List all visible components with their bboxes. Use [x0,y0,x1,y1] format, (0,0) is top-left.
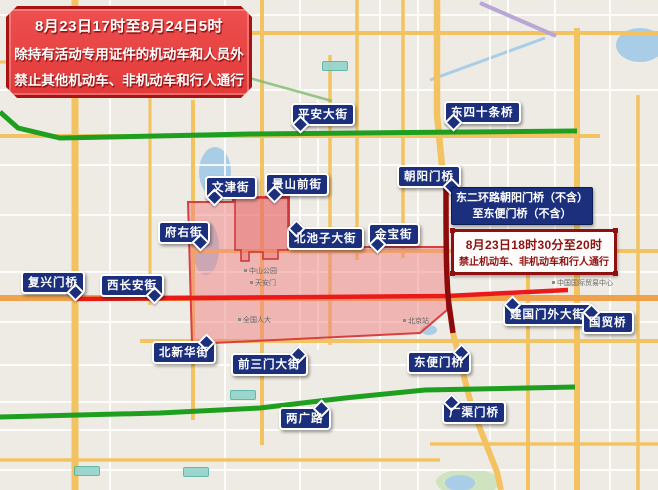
road-badge [183,467,209,477]
street-label-text: 两广路 [286,413,324,425]
road-badge [230,390,256,400]
street-label-text: 建国门外大街 [510,309,585,321]
street-label-liangguang-road: 两广路 [279,407,331,430]
corner-ornament [450,228,455,233]
notice-prohibition: 禁止其他机动车、非机动车和行人通行 [14,69,244,89]
street-label-jianguomenwai-street: 建国门外大街 [503,303,592,326]
ring-notice-time: 8月23日18时30分至20时 [466,236,603,253]
street-label-text: 广渠门桥 [449,407,499,419]
street-label-guangqumen-bridge: 广渠门桥 [442,401,506,424]
street-label-text: 西长安街 [107,280,157,292]
street-label-chaoyangmen-bridge: 朝阳门桥 [397,165,461,188]
corner-ornament [613,228,618,233]
street-label-text: 北新华街 [159,347,209,359]
notice-time-range: 8月23日17时至8月24日5时 [35,15,223,36]
street-label-text: 府右街 [165,227,203,239]
street-label-jingshanqian-street: 景山前街 [265,173,329,196]
street-label-text: 前三门大街 [238,359,301,371]
section-line2: 至东便门桥（不含） [473,206,572,222]
street-label-text: 文津街 [212,182,250,194]
street-label-text: 朝阳门桥 [404,171,454,183]
street-label-text: 金宝街 [375,229,413,241]
street-label-text: 复兴门桥 [28,277,78,289]
street-label-beixinhua-street: 北新华街 [152,341,216,364]
street-label-text: 景山前街 [272,179,322,191]
street-label-jinbao-street: 金宝街 [368,223,420,246]
street-label-wenjin-street: 文津街 [205,176,257,199]
poi-npc: 全国人大 [238,317,271,325]
beijing-traffic-restriction-map: 中山公园 天安门 全国人大 北京站 中国国际贸易中心 平安大街 东四十条桥 文津… [0,0,658,490]
corner-ornament [613,271,618,276]
poi-tiananmen: 天安门 [250,280,276,288]
section-line1: 东二环路朝阳门桥（不含） [456,190,588,206]
street-label-text: 国贸桥 [589,317,627,329]
street-label-text: 东四十条桥 [451,107,514,119]
poi-beijing-station: 北京站 [403,318,429,326]
street-label-guomao-bridge: 国贸桥 [582,311,634,334]
street-label-dongsishitiao-bridge: 东四十条桥 [444,101,521,124]
main-restriction-notice: 8月23日17时至8月24日5时 除持有活动专用证件的机动车和人员外 禁止其他机… [6,6,252,98]
street-label-pingan-avenue: 平安大街 [291,103,355,126]
ring-road-section-notice: 东二环路朝阳门桥（不含） 至东便门桥（不含） [451,187,593,225]
street-label-beichizi-street: 北池子大街 [287,227,364,250]
street-label-text: 平安大街 [298,109,348,121]
notice-exception: 除持有活动专用证件的机动车和人员外 [14,43,244,63]
street-label-fuyou-street: 府右街 [158,221,210,244]
poi-zhongshan-park: 中山公园 [244,268,277,276]
ring-road-time-notice: 8月23日18时30分至20时 禁止机动车、非机动车和行人通行 [451,229,617,275]
ring-notice-prohibition: 禁止机动车、非机动车和行人通行 [459,253,609,268]
street-label-fuxingmen-bridge: 复兴门桥 [21,271,85,294]
corner-ornament [450,271,455,276]
road-badge [322,61,348,71]
poi-china-world-trade-center: 中国国际贸易中心 [552,280,613,288]
street-label-text: 北池子大街 [294,233,357,245]
street-label-dongbianmen-bridge: 东便门桥 [407,351,471,374]
street-label-text: 东便门桥 [414,357,464,369]
street-label-qiansanmen-street: 前三门大街 [231,353,308,376]
street-label-xichangan-street: 西长安街 [100,274,164,297]
road-badge [74,466,100,476]
